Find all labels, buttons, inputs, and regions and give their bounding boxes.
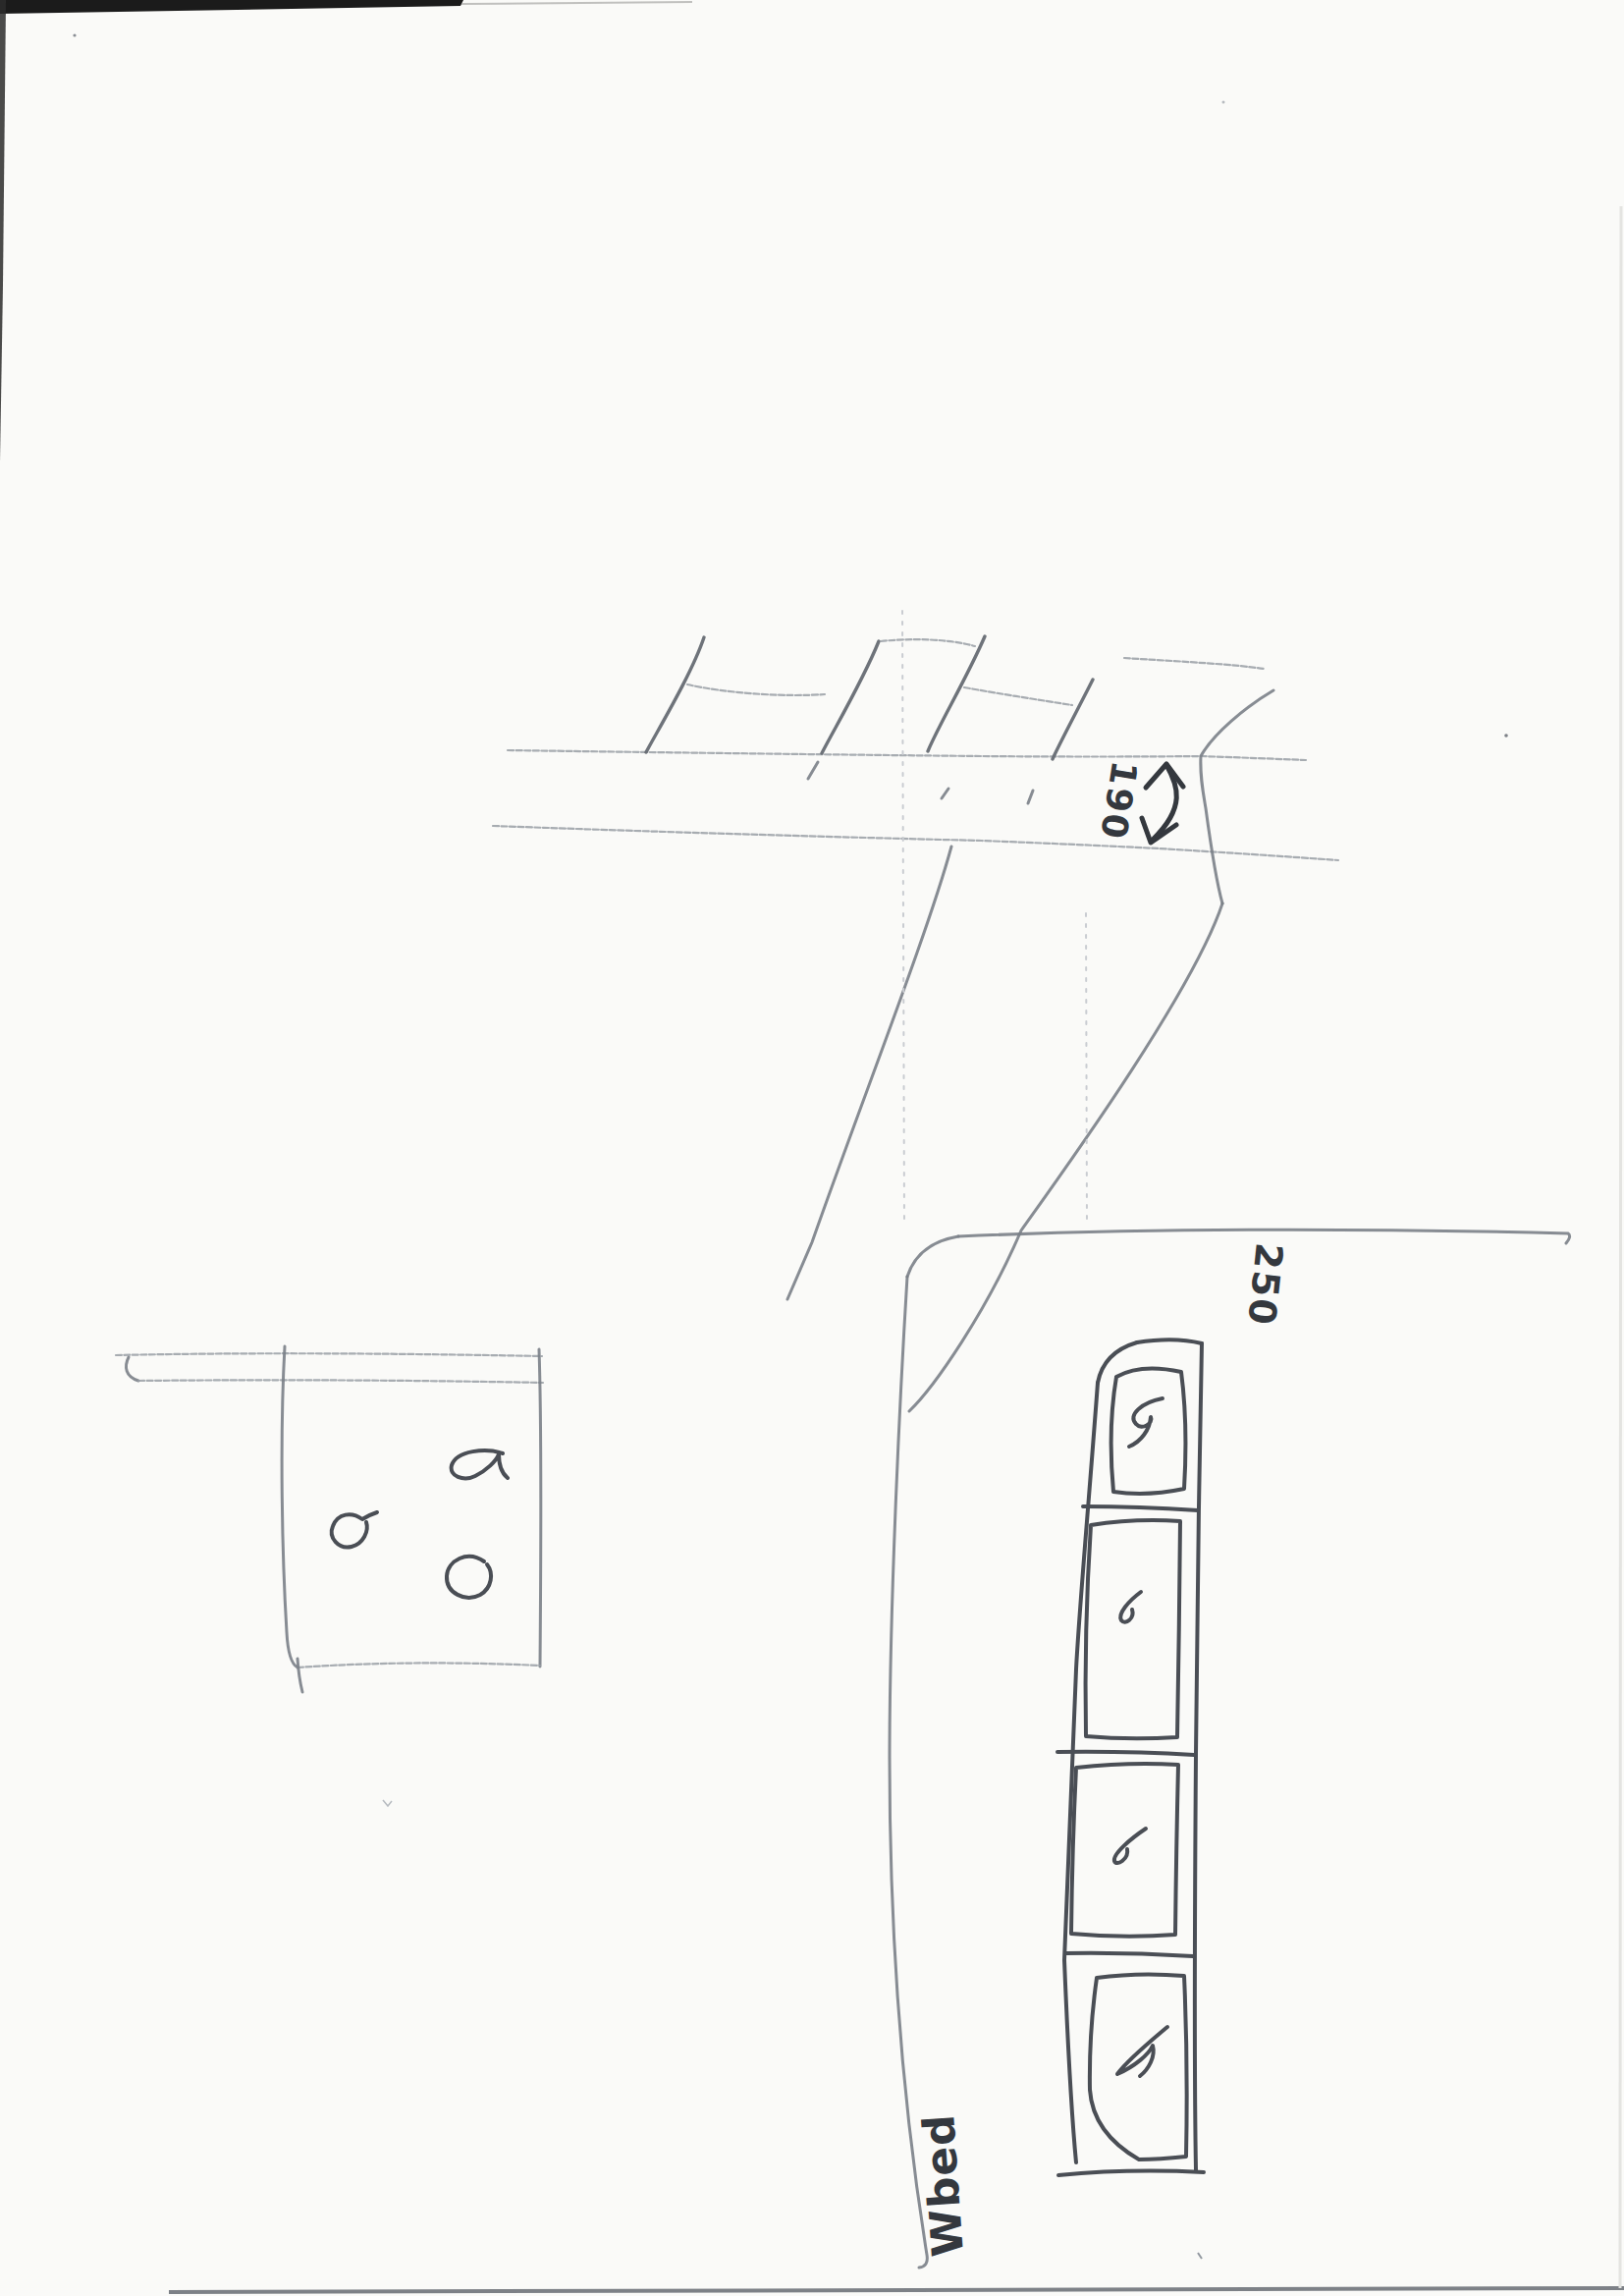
fence-post (1053, 680, 1093, 759)
frame-divider (1057, 1752, 1194, 1755)
fence-post-shadow (808, 762, 818, 779)
counter-bottom-line (138, 1380, 543, 1383)
paper-speck (1222, 101, 1225, 104)
square-sketch (116, 1346, 543, 1692)
panel-squiggle (1114, 1829, 1146, 1863)
frame-divider (1083, 1506, 1198, 1510)
scanned-page: 190 (0, 0, 1624, 2296)
scan-artifacts (0, 0, 1624, 2292)
frame-bottom-edge (1058, 2171, 1204, 2175)
guide-line (1086, 913, 1087, 1223)
fence-post-shadow (1028, 791, 1033, 803)
bed-outline-corner (907, 1236, 958, 1277)
road-upper-edge (508, 750, 1306, 760)
fence-rail (881, 639, 975, 646)
road-width-label: 190 (1093, 758, 1145, 844)
paper-speck (383, 1800, 392, 1806)
paper-speck (1198, 2253, 1202, 2259)
doodle-leaf (452, 1450, 508, 1478)
fence-rail (1124, 658, 1264, 669)
bed-width-label: 250 (1239, 1241, 1291, 1329)
frame-top-edge (1137, 1339, 1202, 1343)
fence-post-shadow (942, 789, 948, 798)
scan-edge-bottom (169, 2288, 1624, 2292)
scan-edge-right (1620, 206, 1621, 2288)
path-edge-right (909, 903, 1222, 1411)
bed-name-label: Wbed (913, 2112, 973, 2259)
counter-left-hook (126, 1357, 138, 1381)
fence-post (646, 637, 704, 752)
fence-rail (687, 684, 825, 695)
square-left-edge (282, 1346, 298, 1667)
width-arrow-head-top (1146, 764, 1183, 788)
panel-squiggle (1129, 1398, 1163, 1447)
paper-speck (1504, 734, 1508, 738)
scan-edge-left (0, 0, 6, 462)
sketch-canvas: 190 (0, 0, 1624, 2296)
panel-squiggle (1120, 1592, 1141, 1622)
guide-line (902, 611, 904, 1226)
doodle-circle (447, 1557, 491, 1598)
path-edge-left (787, 847, 951, 1299)
fence-post (928, 636, 985, 751)
window-panel (1086, 1520, 1180, 1738)
square-right-edge (539, 1349, 541, 1667)
frame-left-edge (1064, 1383, 1098, 2162)
square-corner-stub (298, 1659, 302, 1692)
bed-outline-top (958, 1230, 1570, 1243)
fence-post (822, 641, 879, 753)
frame-divider (1065, 1953, 1193, 1956)
scan-edge-top-fade (461, 2, 692, 4)
fence-rail (964, 687, 1072, 705)
bed-sketch: 250 Wbed (890, 1230, 1570, 2268)
window-panel (1071, 1764, 1178, 1937)
street-sketch: 190 (493, 611, 1338, 1411)
square-bottom-edge (298, 1663, 540, 1667)
road-bend-curve (1201, 690, 1273, 903)
doodle-teardrop (332, 1512, 377, 1547)
paper-speck (73, 33, 76, 36)
counter-top-line (116, 1353, 542, 1356)
scan-edge-top (0, 0, 463, 14)
window-panel (1090, 1974, 1187, 2159)
panel-squiggle (1117, 2027, 1167, 2076)
frame-right-edge (1195, 1343, 1202, 2170)
